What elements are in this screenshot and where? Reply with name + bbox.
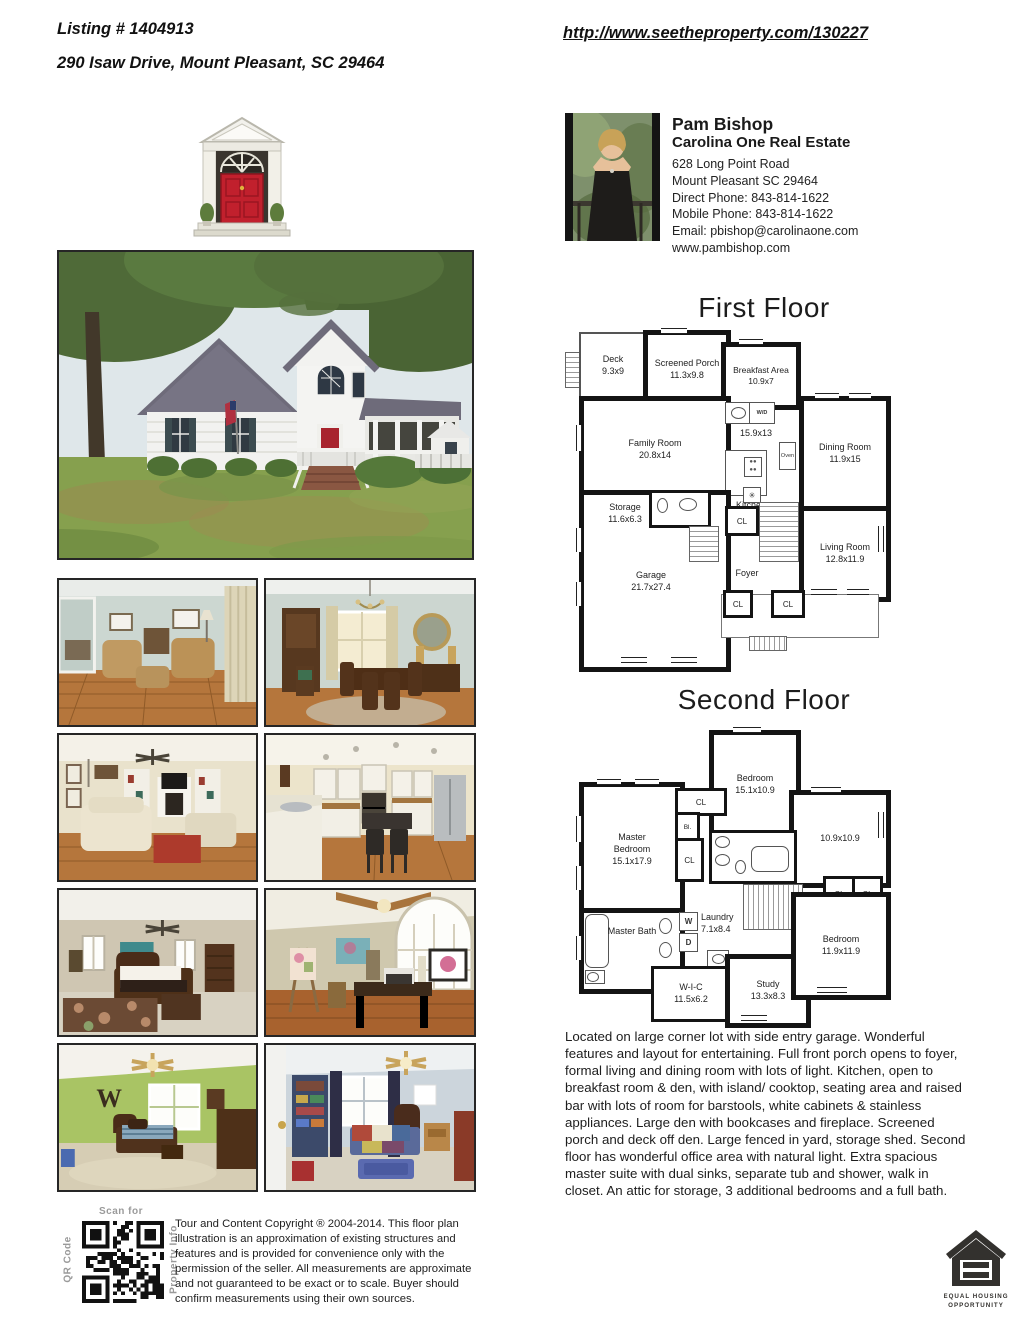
bath-sink-icon: [715, 836, 730, 848]
washer-dryer-box: W/D: [749, 402, 775, 424]
window-mark: [733, 727, 761, 733]
office-image: [266, 890, 474, 1035]
kitchen-sink-icon: [731, 407, 746, 419]
toilet-icon: [735, 860, 746, 874]
bath-sink-icon: [715, 854, 730, 866]
room-bedroom-top: Bedroom15.1x10.9: [709, 730, 801, 840]
kitchen-dims-label: 15.9x13: [721, 428, 791, 440]
closet-2: CL: [771, 590, 805, 618]
toilet-icon: [657, 498, 668, 513]
window-mark: [635, 779, 659, 785]
main-house-photo: [57, 250, 474, 560]
foyer-label: Foyer: [723, 568, 771, 580]
vanity-sink-icon: [659, 918, 672, 934]
first-floor-title: First Floor: [563, 292, 965, 324]
kitchen-image: [266, 735, 474, 880]
oven-box: Oven: [779, 442, 796, 470]
wall-letter-w: W: [96, 1084, 122, 1113]
window-mark: [815, 393, 839, 399]
green-bedroom-image: W: [59, 1045, 256, 1190]
property-address: 290 Isaw Drive, Mount Pleasant, SC 29464: [57, 54, 384, 73]
red-door-graphic: [190, 110, 295, 247]
window-mark: [597, 779, 621, 785]
vanity-sink-icon: [659, 942, 672, 958]
master-bedroom-image: [59, 890, 256, 1035]
sink-icon: [679, 498, 697, 511]
agent-address2: Mount Pleasant SC 29464: [672, 173, 972, 190]
photo-dining-room: [264, 578, 476, 727]
ceiling-fixture-symbol: ✳: [743, 487, 761, 503]
living-room-image: [59, 580, 256, 725]
main-stairs: [759, 502, 799, 562]
second-floor-title: Second Floor: [563, 684, 965, 716]
window-mark: [576, 582, 582, 606]
front-steps: [749, 636, 787, 651]
photo-family-room: [57, 733, 258, 882]
agent-photo-image: [565, 113, 660, 241]
window-mark: [576, 528, 582, 552]
equal-housing-icon: EQUAL HOUSING OPPORTUNITY: [944, 1228, 1008, 1314]
window-mark: [576, 816, 582, 842]
laundry-sink-icon: [712, 954, 725, 964]
room-wic: W-I-C11.5x6.2: [651, 966, 731, 1022]
window-mark: [621, 657, 647, 663]
listing-number: Listing # 1404913: [57, 20, 194, 39]
property-description: Located on large corner lot with side en…: [565, 1028, 967, 1199]
window-mark: [576, 866, 582, 890]
equal-housing-text-2: OPPORTUNITY: [948, 1302, 1004, 1309]
photo-office: [264, 888, 476, 1037]
hall-closet-b: CL: [675, 838, 704, 882]
qr-code-image: [82, 1221, 164, 1303]
qr-code-side-label: QR Code: [63, 1220, 74, 1300]
photo-master-bedroom: [57, 888, 258, 1037]
qr-code: [82, 1221, 164, 1308]
blue-bedroom-image: B: [266, 1045, 474, 1190]
window-mark: [847, 589, 869, 595]
agent-company: Carolina One Real Estate: [672, 134, 972, 151]
room-living: Living Room12.8x11.9: [799, 506, 891, 602]
second-floor-plan: Bedroom15.1x10.9 Master Bedroom15.1x17.9…: [563, 726, 965, 1018]
window-mark: [661, 328, 687, 334]
equal-housing-text-1: EQUAL HOUSING: [944, 1293, 1008, 1300]
agent-photo: [565, 113, 660, 241]
room-master-bedroom: Master Bedroom15.1x17.9: [579, 782, 685, 918]
red-door-image: [190, 110, 295, 242]
window-mark: [849, 393, 871, 399]
master-tub-icon: [585, 914, 609, 968]
qr-scan-for-label: Scan for: [78, 1206, 164, 1217]
photo-living-room: [57, 578, 258, 727]
master-bath-label: Master Bath: [607, 926, 657, 938]
agent-info: Pam Bishop Carolina One Real Estate 628 …: [672, 114, 972, 257]
window-mark: [878, 526, 884, 552]
property-url-link[interactable]: http://www.seetheproperty.com/130227: [563, 24, 868, 43]
room-10-9: 10.9x10.9: [789, 790, 891, 888]
foyer-closet: CL: [725, 506, 759, 536]
copyright-disclaimer: Tour and Content Copyright ® 2004-2014. …: [175, 1217, 473, 1307]
garage-label: Garage21.7x27.4: [603, 570, 699, 593]
equal-housing-logo: EQUAL HOUSING OPPORTUNITY: [944, 1228, 1008, 1319]
photo-bedroom-b: B: [264, 1043, 476, 1192]
room-family: Family Room20.8x14: [579, 396, 731, 504]
window-mark: [811, 787, 841, 793]
window-mark: [878, 812, 884, 838]
agent-address1: 628 Long Point Road: [672, 156, 972, 173]
bathtub-icon: [751, 846, 789, 872]
kitchen-sink-counter: [725, 402, 751, 424]
room-bedroom-right: Bedroom11.9x11.9: [791, 892, 891, 1000]
dining-room-image: [266, 580, 474, 725]
room-dining: Dining Room11.9x15: [799, 396, 891, 512]
window-mark: [576, 936, 582, 960]
toilet-icon: [587, 972, 599, 982]
first-floor-plan: Deck9.3x9 Screened Porch11.3x9.8 Breakfa…: [563, 330, 965, 665]
room-breakfast: Breakfast Area10.9x7: [721, 342, 801, 410]
window-mark: [671, 657, 697, 663]
photo-bedroom-w: W: [57, 1043, 258, 1192]
window-mark: [811, 589, 837, 595]
garage-stairs: [689, 526, 719, 562]
window-mark: [739, 339, 763, 345]
window-mark: [576, 425, 582, 451]
window-mark: [817, 987, 847, 993]
window-mark: [741, 1015, 767, 1021]
cooktop-icon: ●●●●: [744, 457, 762, 477]
dryer-box: D: [679, 933, 698, 952]
washer-box: W: [679, 912, 698, 931]
family-room-image: [59, 735, 256, 880]
agent-name: Pam Bishop: [672, 114, 972, 134]
room-deck: Deck9.3x9: [579, 332, 647, 400]
agent-email: Email: pbishop@carolinaone.com: [672, 223, 972, 240]
flyer-page: Listing # 1404913 290 Isaw Drive, Mount …: [0, 0, 1024, 1325]
closet-1: CL: [723, 590, 753, 618]
agent-direct-phone: Direct Phone: 843-814-1622: [672, 190, 972, 207]
photo-kitchen: [264, 733, 476, 882]
agent-mobile-phone: Mobile Phone: 843-814-1622: [672, 206, 972, 223]
house-exterior-image: [59, 252, 472, 558]
agent-website: www.pambishop.com: [672, 240, 972, 257]
